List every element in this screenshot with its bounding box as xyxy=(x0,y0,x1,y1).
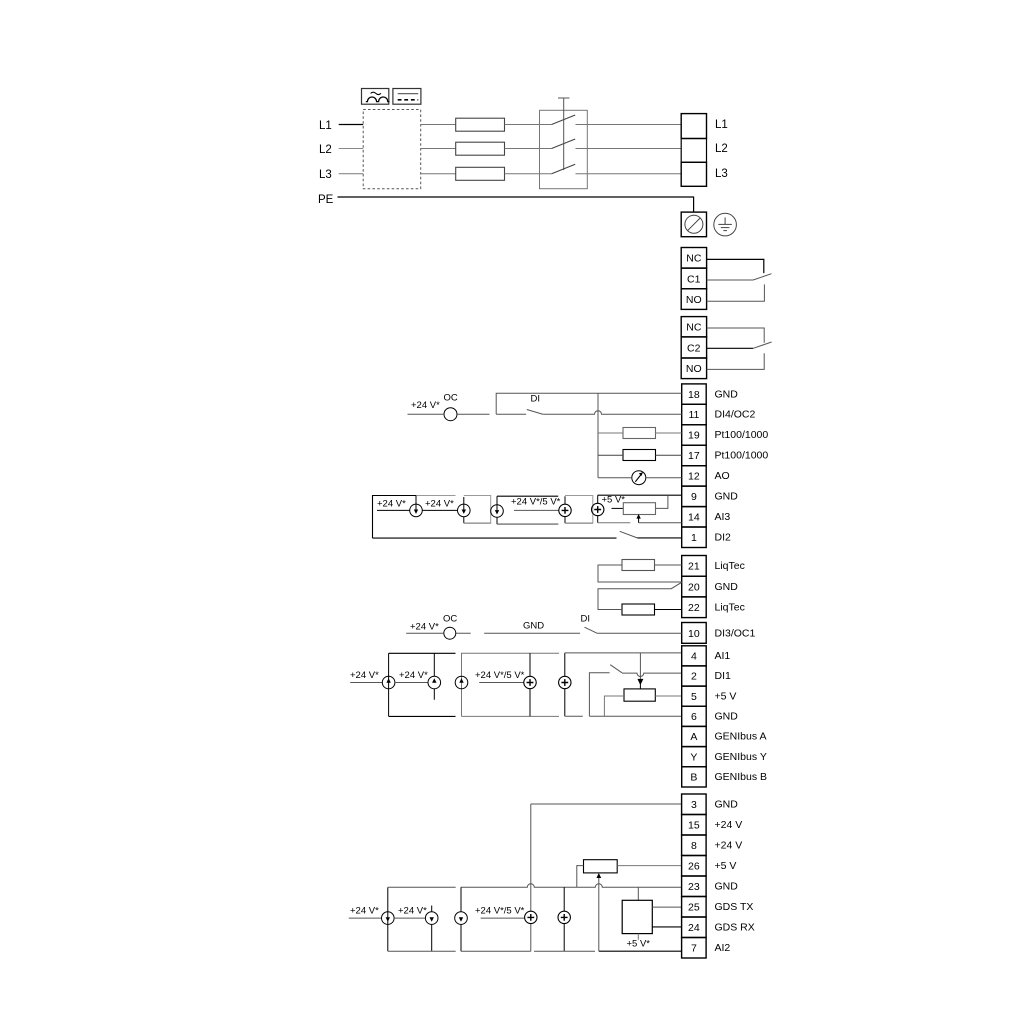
svg-text:GENIbus Y: GENIbus Y xyxy=(715,751,767,763)
svg-text:+24 V*: +24 V* xyxy=(410,622,439,633)
svg-text:+24 V: +24 V xyxy=(715,839,743,851)
svg-text:6: 6 xyxy=(691,711,697,723)
svg-text:LiqTec: LiqTec xyxy=(715,602,745,614)
svg-text:+24 V*: +24 V* xyxy=(411,400,440,411)
svg-text:GND: GND xyxy=(715,710,739,722)
svg-text:+24 V*/5 V*: +24 V*/5 V* xyxy=(511,497,561,508)
svg-text:L3: L3 xyxy=(319,169,332,181)
svg-text:17: 17 xyxy=(688,450,700,462)
svg-text:DI4/OC2: DI4/OC2 xyxy=(715,409,756,421)
svg-text:2: 2 xyxy=(691,671,697,683)
svg-text:GDS RX: GDS RX xyxy=(715,921,755,933)
svg-text:NC: NC xyxy=(686,322,702,334)
svg-text:AI1: AI1 xyxy=(715,650,731,662)
svg-text:GENIbus A: GENIbus A xyxy=(715,731,767,743)
svg-text:24: 24 xyxy=(688,922,700,934)
svg-text:9: 9 xyxy=(691,491,697,503)
svg-text:Pt100/1000: Pt100/1000 xyxy=(715,429,769,441)
svg-text:+5 V: +5 V xyxy=(715,690,737,702)
svg-text:DI3/OC1: DI3/OC1 xyxy=(715,627,756,639)
svg-text:4: 4 xyxy=(691,651,697,663)
svg-text:L2: L2 xyxy=(319,144,332,156)
svg-text:26: 26 xyxy=(688,860,700,872)
svg-text:18: 18 xyxy=(688,389,700,401)
svg-text:20: 20 xyxy=(688,581,700,593)
svg-text:+24 V*: +24 V* xyxy=(399,670,428,681)
svg-text:7: 7 xyxy=(691,942,697,954)
svg-text:1: 1 xyxy=(691,532,697,544)
svg-text:GND: GND xyxy=(523,621,544,632)
svg-text:GND: GND xyxy=(715,581,739,593)
svg-text:DI2: DI2 xyxy=(715,531,732,543)
svg-text:AI3: AI3 xyxy=(715,511,731,523)
svg-text:NC: NC xyxy=(686,253,702,265)
svg-text:5: 5 xyxy=(691,691,697,703)
svg-text:22: 22 xyxy=(688,602,700,614)
svg-text:AO: AO xyxy=(715,470,730,482)
svg-text:GDS TX: GDS TX xyxy=(715,901,754,913)
svg-text:19: 19 xyxy=(688,430,700,442)
svg-text:3: 3 xyxy=(691,799,697,811)
svg-text:DI: DI xyxy=(581,614,591,625)
svg-text:Y: Y xyxy=(690,751,697,763)
svg-text:15: 15 xyxy=(688,819,700,831)
svg-text:+5 V: +5 V xyxy=(715,860,737,872)
svg-text:+5 V*: +5 V* xyxy=(627,939,651,950)
svg-text:11: 11 xyxy=(688,409,699,421)
svg-text:+24 V*: +24 V* xyxy=(398,906,427,917)
svg-text:+24 V*: +24 V* xyxy=(425,499,454,510)
svg-text:L1: L1 xyxy=(715,119,728,131)
svg-text:Pt100/1000: Pt100/1000 xyxy=(715,450,769,462)
svg-text:+24 V: +24 V xyxy=(715,819,743,831)
svg-text:GENIbus B: GENIbus B xyxy=(715,771,768,783)
svg-text:PE: PE xyxy=(318,194,334,206)
svg-text:GND: GND xyxy=(715,388,739,400)
svg-text:DI1: DI1 xyxy=(715,670,732,682)
svg-text:OC: OC xyxy=(443,614,457,625)
svg-text:LiqTec: LiqTec xyxy=(715,560,745,572)
svg-text:L2: L2 xyxy=(715,143,728,155)
svg-text:GND: GND xyxy=(715,798,739,810)
svg-text:A: A xyxy=(690,731,697,743)
svg-text:14: 14 xyxy=(688,512,700,524)
svg-text:+24 V*: +24 V* xyxy=(377,499,406,510)
svg-text:GND: GND xyxy=(715,880,739,892)
svg-text:+24 V*/5 V*: +24 V*/5 V* xyxy=(475,670,525,681)
svg-text:+24 V*/5 V*: +24 V*/5 V* xyxy=(475,906,525,917)
svg-text:25: 25 xyxy=(688,901,700,913)
svg-text:C1: C1 xyxy=(687,273,701,285)
svg-text:C2: C2 xyxy=(687,343,701,355)
svg-text:B: B xyxy=(690,772,697,784)
svg-text:AI2: AI2 xyxy=(715,942,731,954)
svg-text:NO: NO xyxy=(686,294,702,306)
svg-text:L1: L1 xyxy=(319,120,332,132)
svg-text:23: 23 xyxy=(688,881,700,893)
svg-text:+24 V*: +24 V* xyxy=(350,670,379,681)
svg-text:12: 12 xyxy=(688,471,700,483)
svg-text:10: 10 xyxy=(688,628,700,640)
svg-text:21: 21 xyxy=(688,561,700,573)
svg-text:L3: L3 xyxy=(715,168,728,180)
svg-text:GND: GND xyxy=(715,491,739,503)
svg-text:+24 V*: +24 V* xyxy=(350,906,379,917)
svg-text:+5 V*: +5 V* xyxy=(602,495,626,506)
svg-text:8: 8 xyxy=(691,840,697,852)
svg-text:OC: OC xyxy=(444,393,458,404)
svg-text:NO: NO xyxy=(686,363,702,375)
svg-text:DI: DI xyxy=(531,394,541,405)
